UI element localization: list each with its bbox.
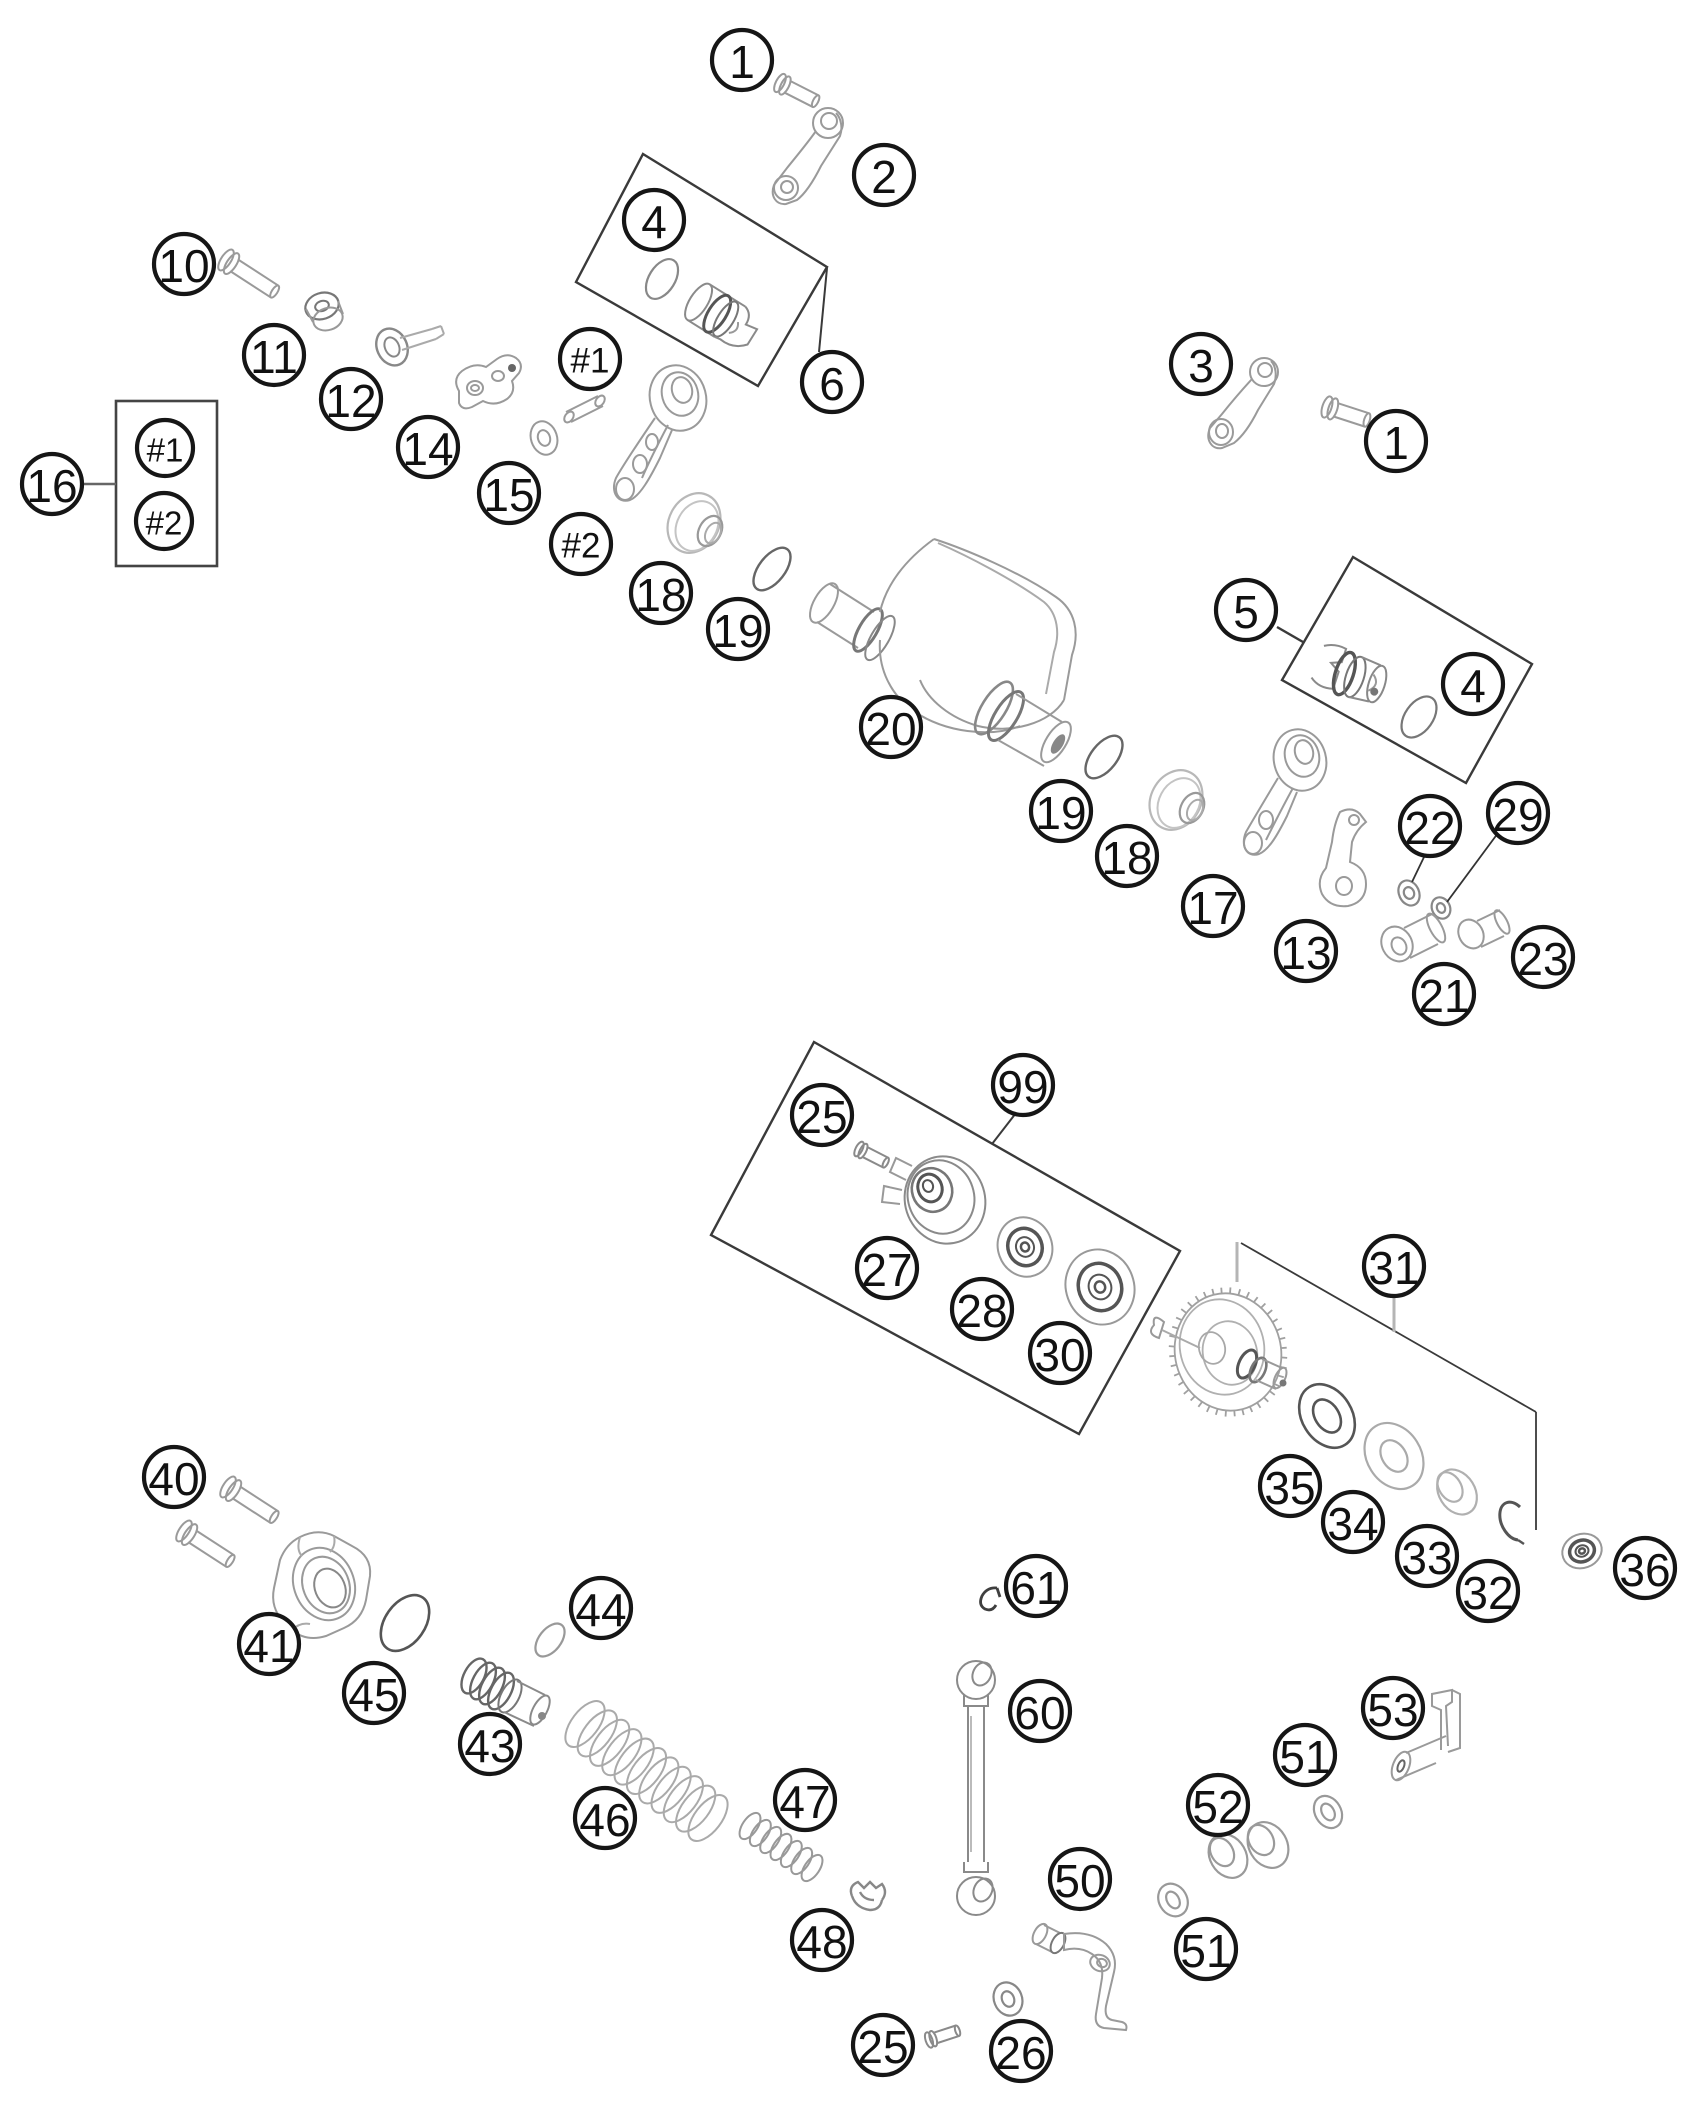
svg-text:17: 17	[1187, 882, 1238, 934]
svg-text:20: 20	[865, 703, 916, 755]
svg-text:26: 26	[995, 2027, 1046, 2079]
svg-text:34: 34	[1327, 1498, 1378, 1550]
svg-text:48: 48	[796, 1916, 847, 1968]
svg-text:30: 30	[1034, 1329, 1085, 1381]
svg-text:27: 27	[861, 1244, 912, 1296]
svg-text:99: 99	[997, 1061, 1048, 1113]
svg-text:15: 15	[483, 469, 534, 521]
svg-text:#2: #2	[562, 527, 601, 566]
svg-text:#1: #1	[571, 342, 610, 381]
svg-text:51: 51	[1279, 1731, 1330, 1783]
svg-text:2: 2	[871, 151, 897, 203]
svg-text:29: 29	[1492, 789, 1543, 841]
svg-text:6: 6	[819, 358, 845, 410]
svg-text:4: 4	[641, 196, 667, 248]
svg-text:1: 1	[1383, 417, 1409, 469]
svg-text:14: 14	[402, 423, 453, 475]
svg-text:46: 46	[579, 1794, 630, 1846]
svg-text:11: 11	[250, 331, 298, 383]
svg-text:52: 52	[1192, 1781, 1243, 1833]
svg-text:35: 35	[1264, 1462, 1315, 1514]
svg-text:4: 4	[1460, 660, 1486, 712]
svg-text:50: 50	[1054, 1855, 1105, 1907]
svg-text:16: 16	[26, 460, 77, 512]
svg-text:#2: #2	[146, 505, 183, 542]
svg-text:25: 25	[796, 1091, 847, 1143]
svg-text:60: 60	[1014, 1687, 1065, 1739]
svg-text:18: 18	[1101, 832, 1152, 884]
svg-text:13: 13	[1280, 927, 1331, 979]
svg-text:43: 43	[464, 1720, 515, 1772]
svg-text:19: 19	[712, 605, 763, 657]
svg-text:5: 5	[1233, 586, 1259, 638]
svg-text:31: 31	[1368, 1242, 1419, 1294]
svg-text:44: 44	[575, 1584, 626, 1636]
svg-text:21: 21	[1418, 970, 1469, 1022]
svg-text:#1: #1	[147, 432, 184, 469]
svg-text:1: 1	[729, 36, 755, 88]
svg-text:10: 10	[158, 240, 209, 292]
svg-text:12: 12	[325, 375, 376, 427]
svg-text:47: 47	[779, 1776, 830, 1828]
svg-text:28: 28	[956, 1285, 1007, 1337]
svg-text:45: 45	[348, 1669, 399, 1721]
svg-text:51: 51	[1180, 1925, 1231, 1977]
svg-text:22: 22	[1404, 802, 1455, 854]
svg-text:33: 33	[1401, 1532, 1452, 1584]
svg-text:53: 53	[1367, 1684, 1418, 1736]
svg-text:41: 41	[243, 1620, 294, 1672]
svg-text:23: 23	[1517, 933, 1568, 985]
svg-text:40: 40	[148, 1453, 199, 1505]
svg-text:61: 61	[1010, 1562, 1061, 1614]
svg-text:36: 36	[1619, 1544, 1670, 1596]
svg-text:25: 25	[857, 2021, 908, 2073]
svg-text:32: 32	[1462, 1567, 1513, 1619]
svg-text:3: 3	[1188, 340, 1214, 392]
svg-text:19: 19	[1035, 787, 1086, 839]
svg-text:18: 18	[635, 569, 686, 621]
